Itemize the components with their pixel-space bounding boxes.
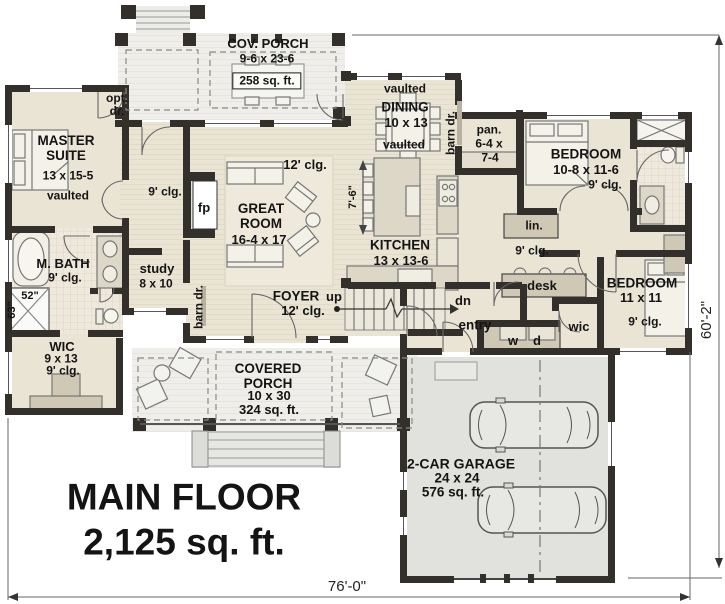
hall-ceiling: 9' clg. [515,244,549,257]
foyer-ceiling: 12' clg. [281,304,325,318]
overall-height-dimension: 60'-2" [699,301,716,339]
toilet-icon-hallbath [661,147,684,163]
cov-porch-size: 9-6 x 23-6 [240,52,295,65]
pantry-name: pan. [477,123,502,136]
barn-door-pantry-label: barn dr. [444,111,457,155]
garage-area: 576 sq. ft. [422,486,484,501]
stairs-up-label: up [326,290,342,304]
cov-porch-name: COV. PORCH [227,37,308,51]
closet-icon [637,120,686,141]
dining-vaulted-upper: vaulted [384,82,426,95]
overall-width-dimension: 76'-0" [328,579,366,596]
plan-title-line2: 2,125 sq. ft. [83,523,285,564]
optional-door-label: opt. dr. [100,92,134,118]
dining-name: DINING [381,101,428,116]
shower-width-dim: 52" [21,290,38,302]
bedroom3-size: 11 x 11 [620,291,662,305]
pantry-size-line2: 7-4 [481,151,498,164]
barn-door-study-label: barn dr. [192,285,205,329]
shower-depth-dim: 63" [6,301,18,318]
study-size: 8 x 10 [139,277,172,290]
master-bath-ceiling: 9' clg. [48,271,82,284]
washer-label: w [508,334,518,348]
bedroom2-ceiling: 9' clg. [588,178,622,191]
cov-porch-area: 258 sq. ft. [232,72,301,89]
kitchen-island-dimension: 7'-6" [347,185,359,209]
master-hall-ceiling: 9' clg. [148,185,182,198]
master-suite-ceiling: vaulted [47,189,89,202]
master-suite-size: 13 x 15-5 [43,169,94,182]
entry-label: entry [458,319,491,334]
master-bath-name: M. BATH [36,257,89,271]
great-room-name: GREAT ROOM [222,202,300,232]
bedroom2-size: 10-8 x 11-6 [553,163,619,177]
stairs [334,288,459,330]
dining-size: 10 x 13 [384,116,427,130]
kitchen-size: 13 x 13-6 [374,254,429,268]
wic-ceiling: 9' clg. [46,364,80,377]
desk-label: desk [527,279,557,293]
pantry-size-line1: 6-4 x [475,137,502,150]
floor-plan: COV. PORCH 9-6 x 23-6 258 sq. ft. opt. d… [0,0,725,604]
plan-title-line1: MAIN FLOOR [67,478,301,519]
toilet-icon-master [96,309,118,324]
kitchen-name: KITCHEN [370,239,430,254]
linen-label: lin. [525,219,542,232]
fireplace-label: fp [198,201,210,215]
great-room-ceiling: 12' clg. [283,158,327,172]
bedroom2-name: BEDROOM [551,148,622,163]
master-suite-name: MASTER SUITE [22,134,110,164]
bedroom3-ceiling: 9' clg. [628,315,662,328]
covered-porch-area: 324 sq. ft. [239,403,299,417]
great-room-size: 16-4 x 17 [232,233,287,247]
vanity-icon [97,236,123,288]
wic-small-label: wic [569,320,590,334]
dining-vaulted-lower: vaulted [383,138,425,151]
dryer-label: d [533,334,541,348]
study-name: study [140,262,175,276]
garage-name: 2-CAR GARAGE [407,456,515,471]
stairs-down-label: dn [455,294,471,308]
